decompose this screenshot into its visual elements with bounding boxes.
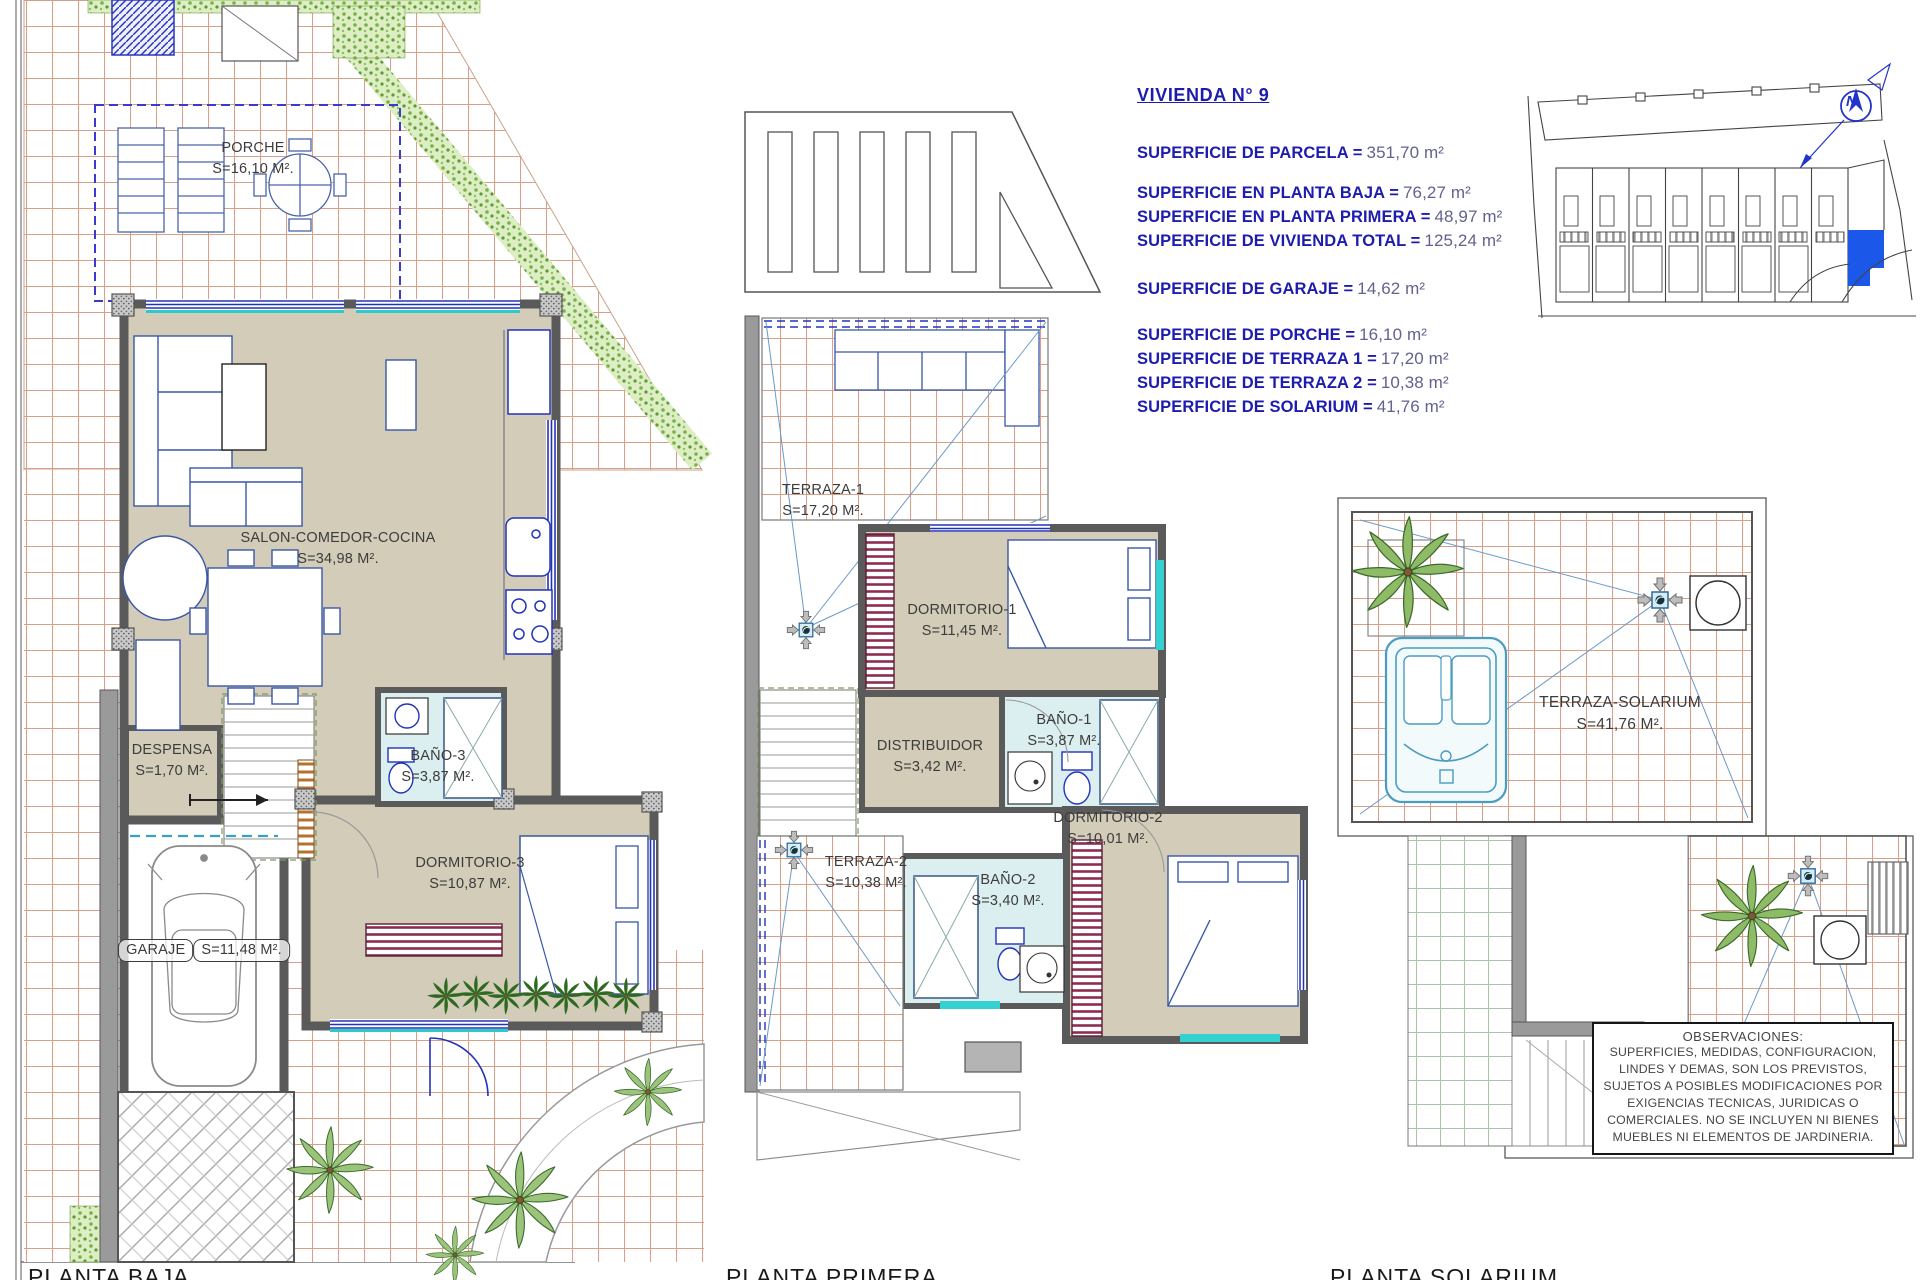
- toilet-icon: [996, 928, 1024, 944]
- wardrobe-icon: [1072, 840, 1102, 1036]
- surface-row: SUPERFICIE DE VIVIENDA TOTAL =125,24 m²: [1137, 231, 1502, 251]
- room-label-salon: SALON-COMEDOR-COCINAS=34,98 M².: [241, 528, 436, 570]
- coffee-table-icon: [222, 364, 266, 450]
- observations-title: OBSERVACIONES:: [1600, 1029, 1886, 1044]
- room-label-dormitorio2: DORMITORIO-2S=10,01 M².: [1053, 808, 1162, 850]
- caption-planta-solarium: PLANTA SOLARIUM: [1330, 1264, 1558, 1280]
- drain-icon: [787, 611, 824, 648]
- wardrobe-icon: [366, 924, 502, 956]
- north-label: N: [1846, 93, 1857, 110]
- stairs-icon: [758, 688, 858, 838]
- plan-planta-baja: [24, 0, 704, 1280]
- bed-icon: [1168, 856, 1298, 1006]
- car-icon: [148, 846, 260, 1086]
- room-label-dormitorio3: DORMITORIO-3S=10,87 M².: [415, 853, 524, 895]
- room-label-terraza1: TERRAZA-1S=17,20 M².: [782, 480, 864, 522]
- caption-planta-primera: PLANTA PRIMERA: [726, 1264, 938, 1280]
- surface-row: SUPERFICIE DE PARCELA =351,70 m²: [1137, 143, 1444, 163]
- sink-icon: [506, 518, 550, 576]
- room-label-bano1: BAÑO-1S=3,87 M².: [1027, 710, 1100, 752]
- observations-box: OBSERVACIONES: SUPERFICIES, MEDIDAS, CON…: [1592, 1022, 1894, 1155]
- plan-planta-primera: [745, 112, 1306, 1160]
- room-label-terraza2: TERRAZA-2S=10,38 M².: [825, 852, 907, 894]
- room-label-bano3: BAÑO-3S=3,87 M².: [401, 746, 474, 788]
- room-label-despensa: DESPENSAS=1,70 M².: [132, 740, 213, 782]
- fridge-icon: [508, 330, 550, 414]
- stove-icon: [506, 590, 552, 654]
- louver-icon: [1868, 862, 1908, 934]
- surface-row: SUPERFICIE EN PLANTA BAJA =76,27 m²: [1137, 183, 1471, 203]
- highlighted-unit: [1848, 230, 1884, 286]
- surface-row: SUPERFICIE EN PLANTA PRIMERA =48,97 m²: [1137, 207, 1502, 227]
- jacuzzi-icon: [1386, 638, 1506, 802]
- armchair-icon: [136, 640, 180, 730]
- entry-steps-icon: [112, 0, 174, 55]
- sofa-icon: [835, 330, 1005, 390]
- surface-row: SUPERFICIE DE TERRAZA 2 =10,38 m²: [1137, 373, 1449, 393]
- toilet-icon: [1062, 752, 1092, 770]
- sun-lounger-icon: [118, 128, 164, 232]
- surface-row: SUPERFICIE DE SOLARIUM =41,76 m²: [1137, 397, 1445, 417]
- room-label-bano2: BAÑO-2S=3,40 M².: [971, 870, 1044, 912]
- window-icon: [1180, 1034, 1280, 1042]
- site-plan: [1528, 64, 1916, 318]
- surface-row: SUPERFICIE DE PORCHE =16,10 m²: [1137, 325, 1427, 345]
- tv-cabinet-icon: [386, 360, 416, 430]
- window-icon: [1156, 560, 1164, 650]
- dining-table-icon: [190, 550, 340, 704]
- room-label-terraza-solarium: TERRAZA-SOLARIUMS=41,76 M².: [1539, 692, 1701, 737]
- page-title: VIVIENDA N° 9: [1137, 85, 1269, 106]
- bed-icon: [1008, 540, 1156, 648]
- surface-row: SUPERFICIE DE TERRAZA 1 =17,20 m²: [1137, 349, 1449, 369]
- surface-row: SUPERFICIE DE GARAJE =14,62 m²: [1137, 279, 1425, 299]
- wardrobe-icon: [866, 534, 894, 688]
- room-label-distribuidor: DISTRIBUIDORS=3,42 M².: [877, 736, 983, 778]
- floor-plan-sheet: VIVIENDA N° 9 SUPERFICIE DE PARCELA =351…: [0, 0, 1920, 1280]
- driveway: [118, 1092, 294, 1262]
- room-label-porche: PORCHES=16,10 M².: [212, 138, 294, 180]
- room-label-dormitorio1: DORMITORIO-1S=11,45 M².: [907, 600, 1016, 642]
- caption-planta-baja: PLANTA BAJA: [28, 1264, 189, 1280]
- observations-body: SUPERFICIES, MEDIDAS, CONFIGURACION, LIN…: [1600, 1044, 1886, 1146]
- room-label-garaje: GARAJES=11,48 M².: [118, 938, 290, 963]
